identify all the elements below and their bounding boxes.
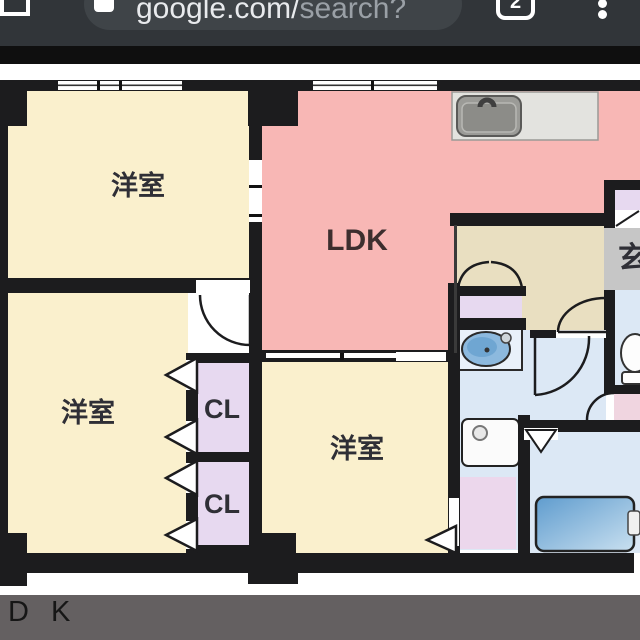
floorplan-image[interactable]: 洋室 洋室 洋室 LDK CL CL 玄 xyxy=(0,64,640,595)
tab-count: 2 xyxy=(510,0,521,13)
room-fills xyxy=(8,91,640,553)
label-closet-top: CL xyxy=(204,394,240,424)
address-bar[interactable]: google.com/search? xyxy=(84,0,462,30)
phone-screen: google.com/search? 2 xyxy=(0,0,640,640)
home-icon[interactable] xyxy=(0,0,30,16)
menu-dots-icon[interactable] xyxy=(598,0,607,8)
url-path: search? xyxy=(299,0,406,25)
label-entrance: 玄 xyxy=(618,241,640,275)
tub-faucet-icon xyxy=(628,511,640,535)
washing-machine-pan xyxy=(462,419,519,466)
menu-dots-icon[interactable] xyxy=(598,10,607,19)
entry-closet xyxy=(614,190,640,210)
dressing-area xyxy=(460,477,516,549)
entry-mat xyxy=(614,394,640,420)
site-favicon-icon xyxy=(94,0,114,12)
label-closet-bottom: CL xyxy=(204,489,240,519)
caption-text: D K xyxy=(8,596,77,629)
kitchen-counter xyxy=(452,92,598,140)
image-letterbox xyxy=(0,46,640,64)
tab-switcher-icon[interactable]: 2 xyxy=(496,0,535,20)
faucet-icon xyxy=(501,333,511,343)
storage-closet xyxy=(460,296,522,318)
url-host: google.com/ xyxy=(136,0,299,25)
browser-toolbar: google.com/search? 2 xyxy=(0,0,640,46)
url-text: google.com/search? xyxy=(136,0,406,26)
caption-bar: D K xyxy=(0,595,640,640)
washbasin xyxy=(452,328,522,370)
label-ldk: LDK xyxy=(326,224,388,257)
bathtub xyxy=(536,497,640,551)
label-bedroom-bottom-left: 洋室 xyxy=(61,397,115,428)
toilet xyxy=(621,334,640,384)
label-bedroom-center: 洋室 xyxy=(330,433,384,464)
label-bedroom-top-left: 洋室 xyxy=(111,170,165,201)
